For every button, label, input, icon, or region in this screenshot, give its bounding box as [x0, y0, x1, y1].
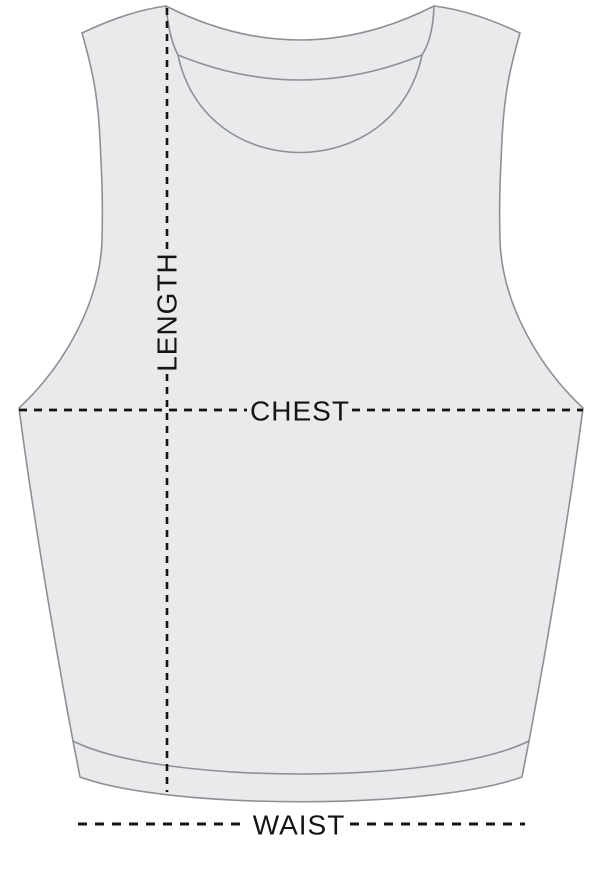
- size-guide-diagram: LENGTH CHEST WAIST: [0, 0, 600, 875]
- waist-label: WAIST: [253, 810, 346, 841]
- chest-label: CHEST: [250, 396, 350, 427]
- size-guide-canvas: LENGTH CHEST WAIST: [0, 0, 600, 875]
- length-label: LENGTH: [152, 252, 183, 372]
